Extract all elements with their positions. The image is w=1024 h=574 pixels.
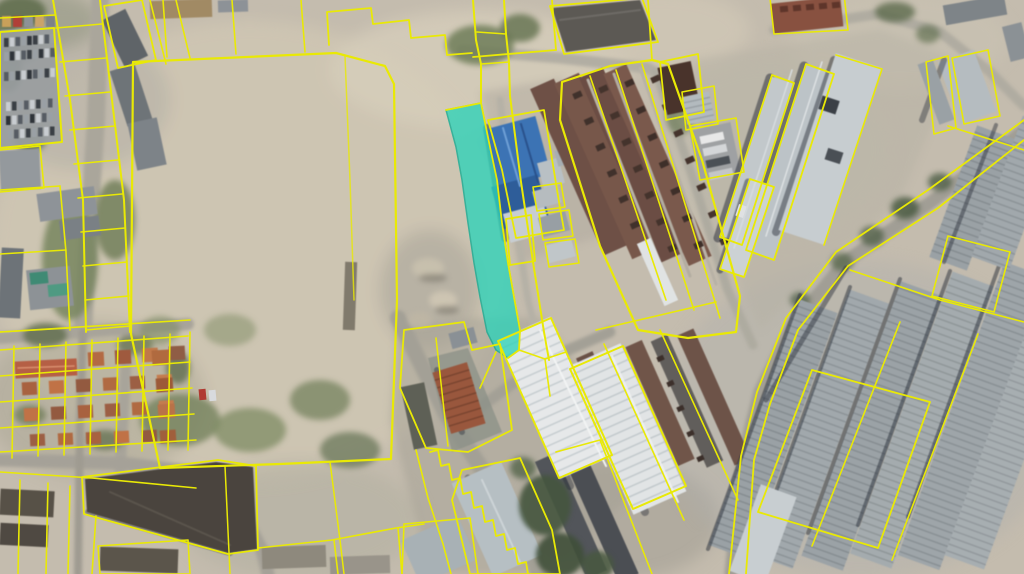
- map-feature: [150, 0, 213, 19]
- map-feature: [681, 91, 714, 124]
- map-feature: [262, 545, 327, 569]
- boundary-line: [78, 332, 83, 574]
- map-feature: [47, 283, 68, 297]
- map-feature: [510, 457, 536, 479]
- map-feature: [95, 180, 135, 260]
- map-feature: [290, 380, 350, 420]
- map-feature: [214, 408, 286, 452]
- map-feature: [0, 523, 49, 547]
- map-feature: [29, 271, 48, 285]
- map-feature: [916, 25, 940, 43]
- map-feature: [100, 547, 179, 574]
- car: [199, 389, 207, 401]
- map-canvas: [0, 0, 1024, 574]
- map-feature: [330, 555, 391, 574]
- map-feature: [23, 323, 67, 347]
- map-feature: [860, 226, 884, 246]
- map-feature: [419, 274, 447, 282]
- map-feature: [0, 247, 24, 318]
- map-feature: [891, 197, 919, 219]
- map-feature: [408, 312, 432, 328]
- map-feature: [435, 306, 459, 314]
- map-feature: [204, 314, 256, 346]
- car: [209, 390, 217, 402]
- map-feature: [343, 262, 357, 330]
- map-feature: [0, 149, 41, 191]
- map-feature: [875, 2, 915, 22]
- cadastral-map-view[interactable]: [0, 0, 1024, 574]
- map-feature: [519, 475, 571, 535]
- map-feature: [0, 489, 55, 518]
